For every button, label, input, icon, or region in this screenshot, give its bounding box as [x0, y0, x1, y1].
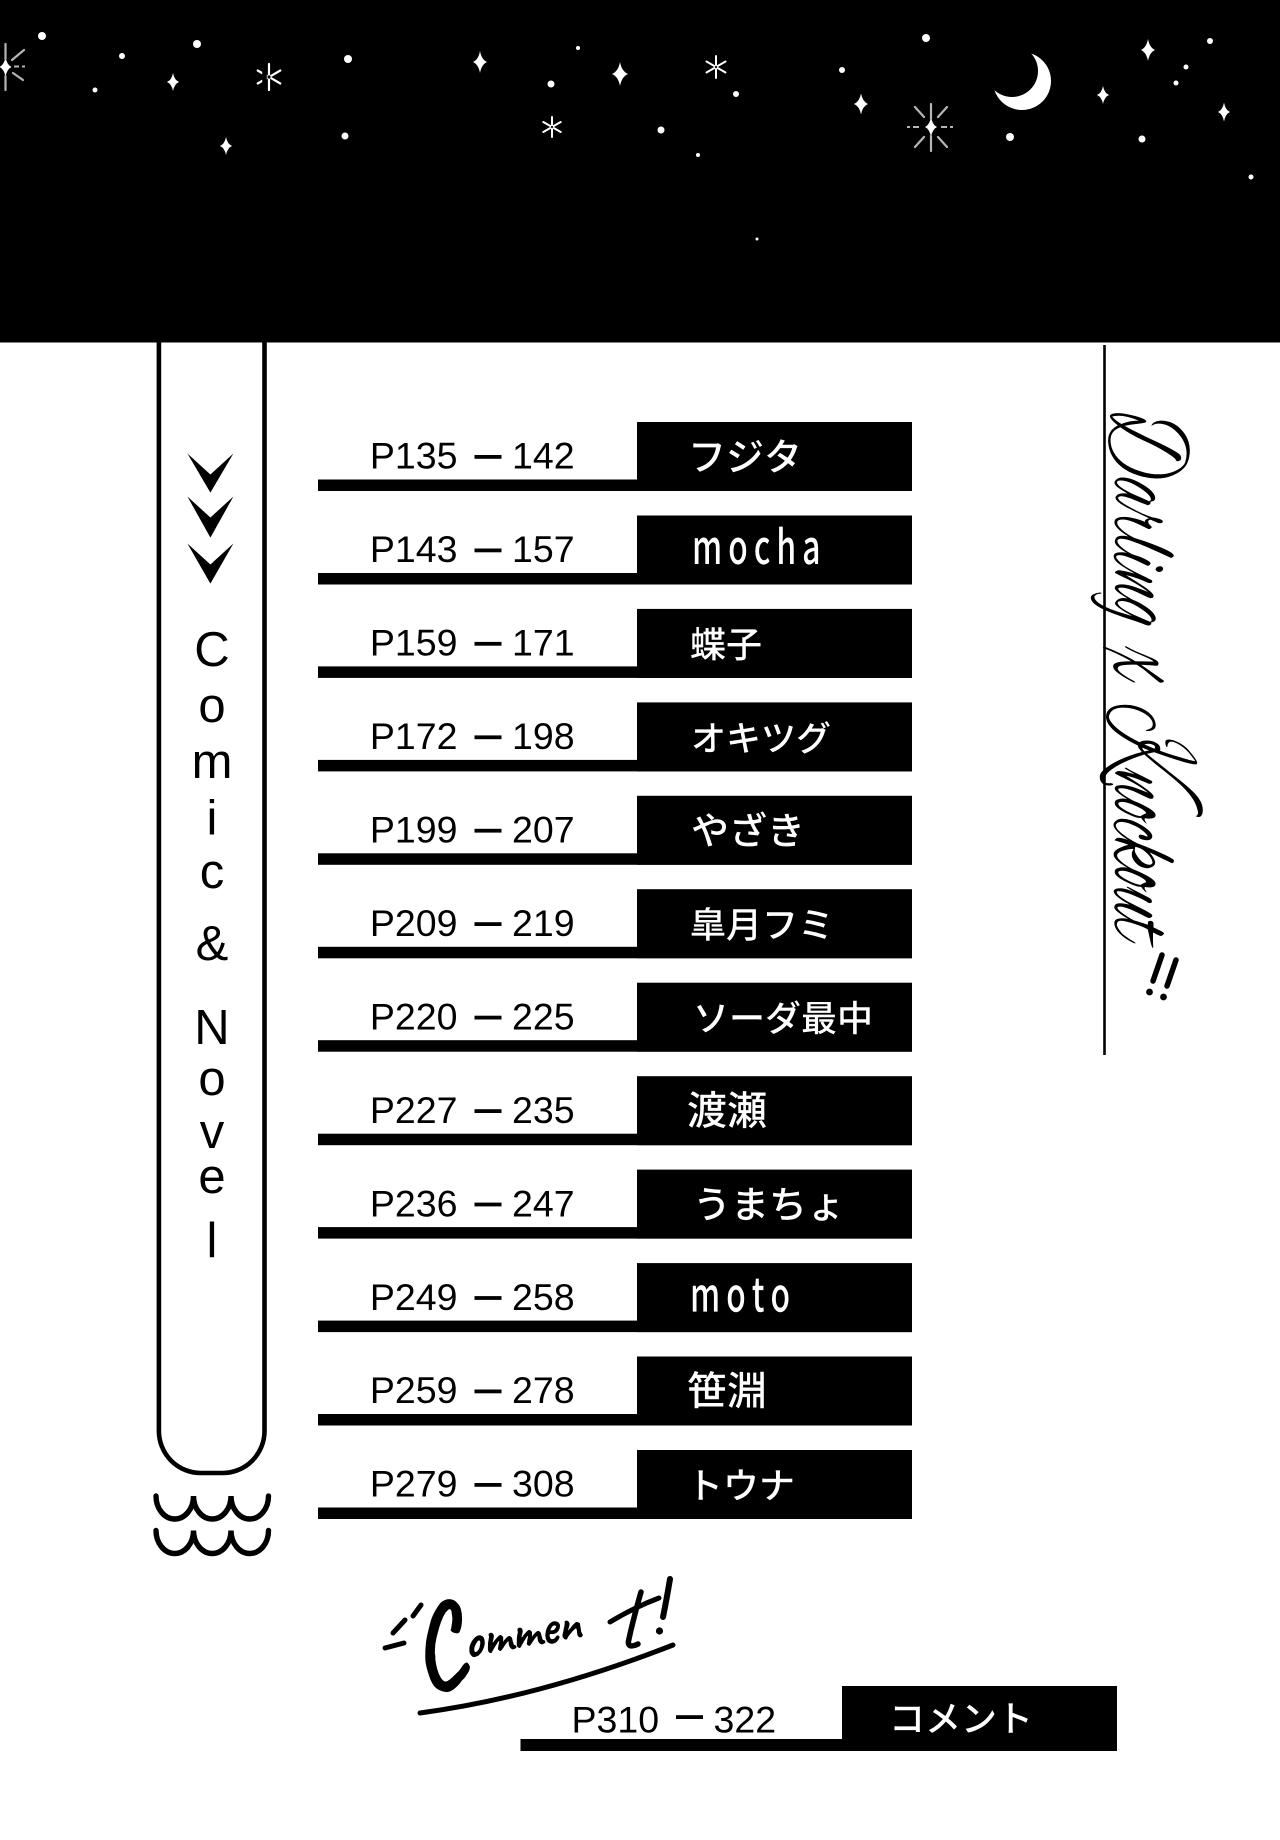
svg-text:P236: P236	[370, 1182, 458, 1224]
svg-text:c: c	[200, 845, 225, 899]
svg-text:P279: P279	[370, 1463, 458, 1505]
svg-text:207: 207	[512, 809, 575, 851]
svg-text:C: C	[194, 623, 229, 677]
svg-text:P143: P143	[370, 528, 458, 570]
svg-text:&: &	[196, 917, 229, 971]
svg-text:o: o	[198, 1052, 225, 1106]
svg-text:P259: P259	[370, 1369, 458, 1411]
svg-text:322: 322	[714, 1699, 777, 1741]
svg-text:l: l	[207, 1214, 218, 1268]
svg-text:P227: P227	[370, 1089, 458, 1131]
svg-text:258: 258	[512, 1276, 575, 1318]
svg-text:308: 308	[512, 1463, 575, 1505]
svg-text:142: 142	[512, 435, 575, 477]
svg-text:N: N	[194, 1001, 229, 1055]
svg-text:P135: P135	[370, 435, 458, 477]
svg-text:198: 198	[512, 715, 575, 757]
svg-text:171: 171	[512, 622, 575, 664]
svg-text:P159: P159	[370, 622, 458, 664]
svg-text:e: e	[198, 1150, 225, 1204]
svg-text:P310: P310	[572, 1699, 660, 1741]
svg-text:235: 235	[512, 1089, 575, 1131]
svg-text:P199: P199	[370, 809, 458, 851]
svg-text:157: 157	[512, 528, 575, 570]
svg-text:219: 219	[512, 902, 575, 944]
svg-text:P249: P249	[370, 1276, 458, 1318]
svg-text:278: 278	[512, 1369, 575, 1411]
svg-text:o: o	[198, 679, 225, 733]
svg-text:i: i	[207, 792, 218, 846]
svg-text:225: 225	[512, 995, 575, 1037]
svg-text:m: m	[192, 735, 233, 789]
svg-text:P172: P172	[370, 715, 458, 757]
svg-text:P220: P220	[370, 995, 458, 1037]
svg-text:247: 247	[512, 1182, 575, 1224]
svg-text:P209: P209	[370, 902, 458, 944]
